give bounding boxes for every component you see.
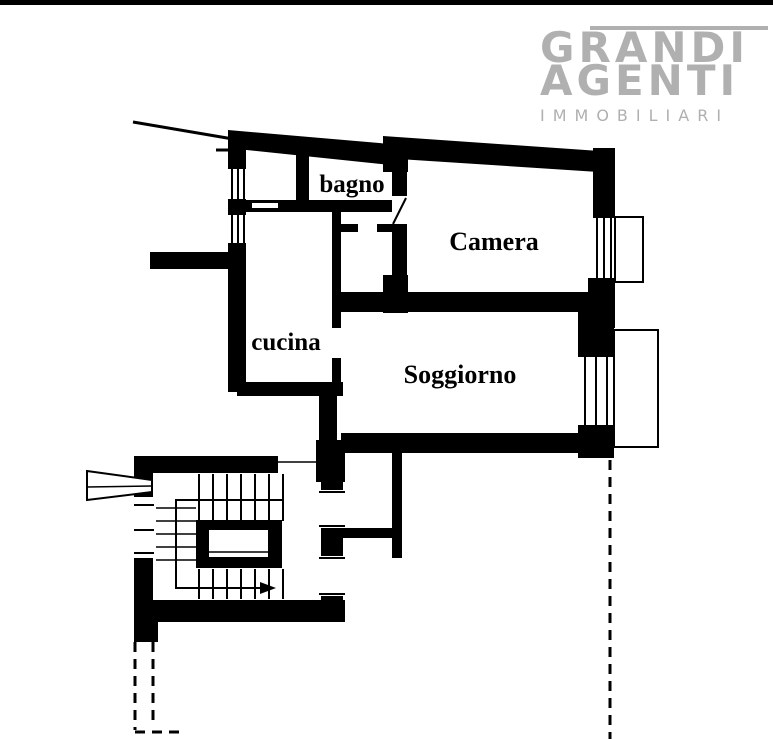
logo-tagline-immobiliari: IMMOBILIARI [540,106,772,125]
camera-door [392,196,407,224]
soggiorno-window [585,357,607,427]
top-border [0,0,773,5]
lower-stairs [199,569,283,599]
room-label-cucina: cucina [251,329,321,356]
stairwell [87,440,345,642]
stair-window [132,497,155,558]
upper-stairs [199,474,283,521]
room-label-bagno: bagno [319,171,384,198]
agency-logo: GRANDI AGENTI IMMOBILIARI [540,26,772,125]
small-room-door [252,203,278,208]
camera-balcony [615,217,643,282]
room-label-soggiorno: Soggiorno [404,360,517,389]
room-label-camera: Camera [449,227,539,256]
stair-core [196,520,282,568]
floorplan-canvas: bagno Camera cucina Soggiorno GRANDI AGE… [0,0,773,739]
soggiorno-balcony [614,330,658,447]
camera-window [597,218,611,278]
logo-word-agenti: AGENTI [540,64,772,97]
property-boundary-dashed [135,460,610,739]
